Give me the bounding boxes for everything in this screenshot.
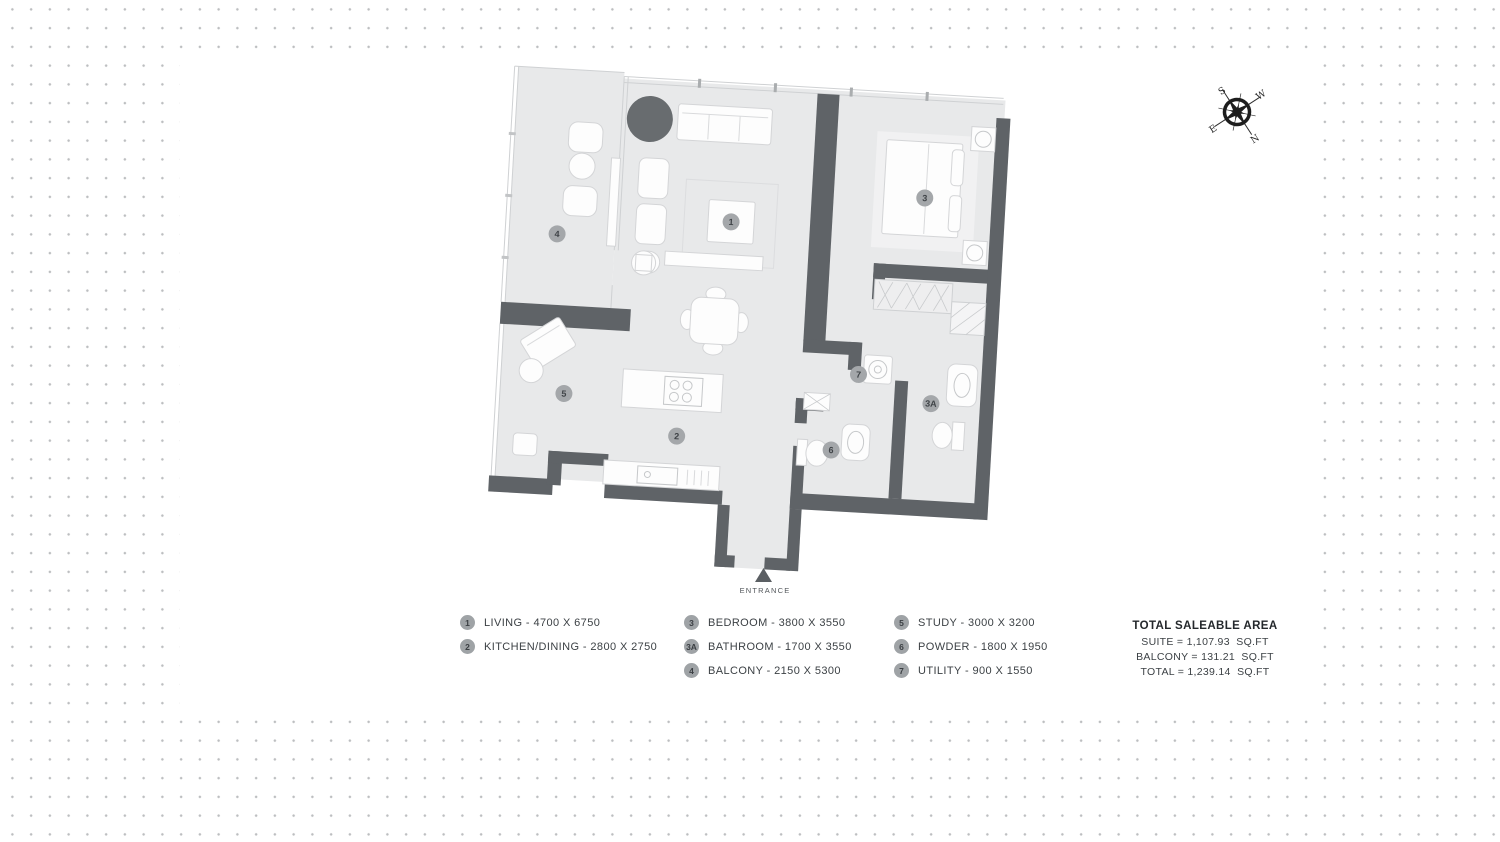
- compass-north-label: N: [1249, 133, 1262, 147]
- pot-square: [635, 254, 652, 271]
- legend-label: KITCHEN/DINING - 2800 X 2750: [484, 641, 657, 653]
- balcony-chair: [568, 121, 604, 153]
- svg-text:4: 4: [554, 229, 560, 239]
- legend-badge: 7: [894, 663, 909, 678]
- vanity-sink: [946, 364, 978, 408]
- nightstand: [971, 127, 996, 152]
- legend-item-study: 5 STUDY - 3000 X 3200: [894, 615, 1048, 630]
- nightstand: [962, 240, 987, 265]
- compass-rose-icon: S W N E: [1203, 80, 1275, 152]
- total-saleable-area: TOTAL SALEABLE AREA SUITE = 1,107.93 SQ.…: [1124, 620, 1286, 680]
- svg-text:3A: 3A: [925, 398, 938, 409]
- legend-label: BEDROOM - 3800 X 3550: [708, 617, 845, 629]
- legend-item-powder: 6 POWDER - 1800 X 1950: [894, 639, 1048, 654]
- svg-text:6: 6: [828, 445, 834, 455]
- legend-item-utility: 7 UTILITY - 900 X 1550: [894, 663, 1048, 678]
- legend-label: BATHROOM - 1700 X 3550: [708, 641, 852, 653]
- kitchen-island: [621, 369, 723, 413]
- sofa: [677, 104, 773, 145]
- legend-label: POWDER - 1800 X 1950: [918, 641, 1048, 653]
- dining-table: [689, 297, 740, 346]
- legend-label: BALCONY - 2150 X 5300: [708, 665, 841, 677]
- legend-badge: 5: [894, 615, 909, 630]
- balcony-floor: [505, 66, 624, 308]
- pillow: [948, 195, 962, 232]
- legend-item-living: 1 LIVING - 4700 X 6750: [460, 615, 657, 630]
- total-area-value: TOTAL = 1,239.14 SQ.FT: [1124, 665, 1286, 680]
- utility-furniture: [863, 355, 893, 385]
- svg-text:2: 2: [674, 431, 680, 441]
- floor-plan: 1 2 3 3A 4 5 6: [498, 88, 1018, 618]
- wall-corridor-right-foot: [764, 557, 791, 570]
- svg-text:7: 7: [856, 370, 862, 380]
- legend-label: UTILITY - 900 X 1550: [918, 665, 1033, 677]
- stool: [512, 433, 537, 456]
- legend-label: LIVING - 4700 X 6750: [484, 617, 600, 629]
- total-saleable-area-heading: TOTAL SALEABLE AREA: [1124, 620, 1286, 632]
- powder-sink: [841, 424, 871, 462]
- pillow: [951, 149, 965, 186]
- entrance-marker: ENTRANCE: [740, 568, 791, 595]
- legend-badge: 1: [460, 615, 475, 630]
- entrance-arrow-icon: [755, 568, 772, 582]
- compass-west-label: W: [1254, 88, 1268, 103]
- svg-text:1: 1: [728, 217, 734, 227]
- wall-corridor-left-foot: [714, 554, 735, 567]
- legend-column-2: 3 BEDROOM - 3800 X 3550 3A BATHROOM - 17…: [684, 615, 852, 678]
- svg-text:3: 3: [922, 193, 928, 203]
- legend-item-balcony: 4 BALCONY - 2150 X 5300: [684, 663, 852, 678]
- washer: [863, 355, 893, 385]
- legend-item-bedroom: 3 BEDROOM - 3800 X 3550: [684, 615, 852, 630]
- svg-text:5: 5: [561, 389, 567, 399]
- suite-area-value: SUITE = 1,107.93 SQ.FT: [1124, 635, 1286, 650]
- armchair: [635, 203, 667, 245]
- legend-badge: 2: [460, 639, 475, 654]
- legend-badge: 3: [684, 615, 699, 630]
- toilet-tank: [951, 422, 965, 451]
- armchair: [637, 157, 669, 199]
- balcony-chair: [562, 185, 598, 217]
- balcony-area-value: BALCONY = 131.21 SQ.FT: [1124, 650, 1286, 665]
- entrance-label: ENTRANCE: [740, 586, 791, 595]
- legend-label: STUDY - 3000 X 3200: [918, 617, 1035, 629]
- legend-column-3: 5 STUDY - 3000 X 3200 6 POWDER - 1800 X …: [894, 615, 1048, 678]
- legend-item-bathroom: 3A BATHROOM - 1700 X 3550: [684, 639, 852, 654]
- legend-item-kitchen-dining: 2 KITCHEN/DINING - 2800 X 2750: [460, 639, 657, 654]
- legend-badge: 4: [684, 663, 699, 678]
- legend-badge: 3A: [684, 639, 699, 654]
- legend-column-1: 1 LIVING - 4700 X 6750 2 KITCHEN/DINING …: [460, 615, 657, 654]
- legend-badge: 6: [894, 639, 909, 654]
- floor-plan-rotated-group: 1 2 3 3A 4 5 6: [485, 66, 1012, 582]
